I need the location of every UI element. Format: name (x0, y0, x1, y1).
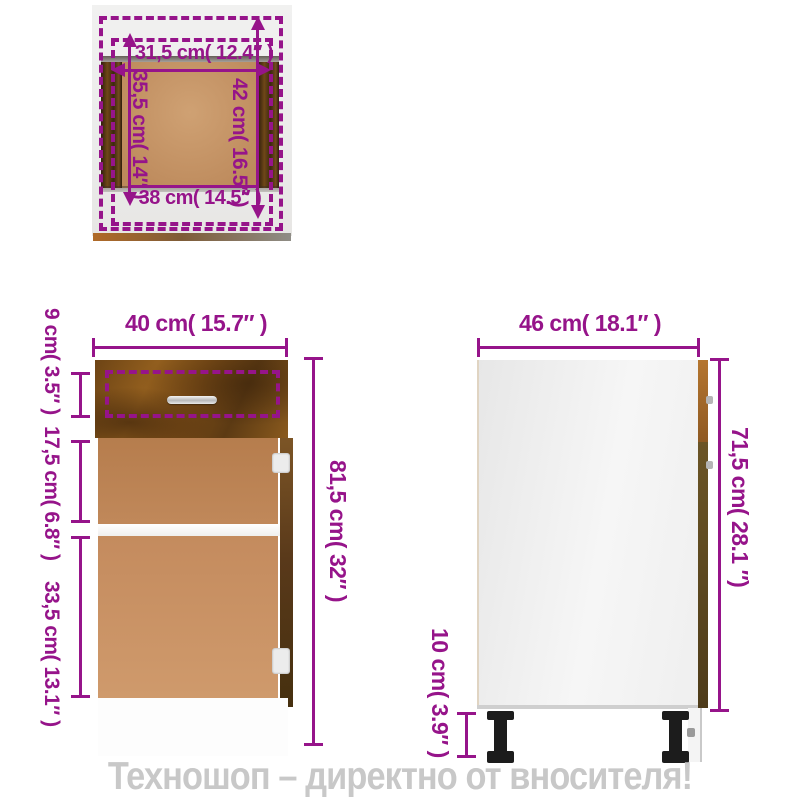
leg-stem (494, 720, 507, 751)
leg-height-label: 10 cm( 3.9″ ) (427, 628, 452, 758)
leg-flange (487, 711, 514, 720)
door-handle-side (706, 461, 713, 469)
leg-stem (669, 720, 682, 751)
dim-line-body-height (718, 358, 721, 712)
drawer-handle-side (706, 396, 713, 404)
side-depth-label: 46 cm( 18.1″ ) (515, 311, 665, 336)
leg-flange (662, 711, 689, 720)
body-height-label: 71,5 cm( 28.1 ″) (727, 427, 752, 587)
side-view: 46 cm( 18.1″ ) 10 cm( 3.9″ ) 71,5 cm( 28… (0, 0, 800, 800)
leg-adjuster-screw (687, 728, 695, 737)
dim-line-leg-height (465, 712, 468, 758)
product-dimension-diagram: 31,5 cm( 12.4″ ) 35,5 cm( 14″ ) 42 cm( 1… (0, 0, 800, 800)
shop-banner-text: Техношоп – директно от вносителя! (48, 757, 752, 796)
dim-line-side-depth (477, 346, 700, 349)
door-front-edge-side (698, 442, 708, 708)
cabinet-side-panel (477, 360, 700, 707)
side-panel-bottom-edge (477, 705, 698, 709)
